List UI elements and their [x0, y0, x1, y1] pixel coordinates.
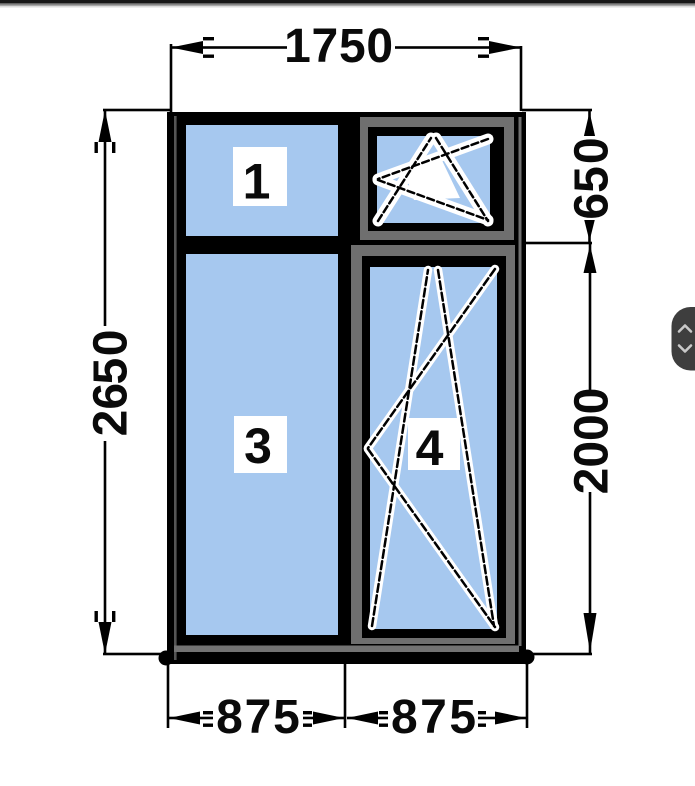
svg-text:5: 5 — [339, 20, 366, 73]
svg-text:2: 2 — [85, 410, 138, 437]
svg-text:0: 0 — [566, 414, 619, 441]
svg-text:3: 3 — [244, 418, 272, 474]
svg-text:6: 6 — [566, 193, 619, 220]
svg-text:0: 0 — [566, 388, 619, 415]
svg-text:5: 5 — [449, 691, 476, 744]
svg-text:0: 0 — [85, 330, 138, 357]
svg-text:6: 6 — [85, 383, 138, 410]
svg-text:2: 2 — [566, 468, 619, 495]
svg-text:5: 5 — [566, 166, 619, 193]
svg-text:5: 5 — [273, 691, 300, 744]
svg-text:1: 1 — [284, 20, 311, 73]
svg-text:5: 5 — [85, 358, 138, 385]
svg-text:7: 7 — [420, 691, 447, 744]
svg-text:8: 8 — [216, 691, 243, 744]
svg-text:0: 0 — [366, 20, 393, 73]
svg-text:7: 7 — [312, 20, 339, 73]
svg-text:7: 7 — [245, 691, 272, 744]
svg-text:0: 0 — [566, 441, 619, 468]
svg-text:0: 0 — [566, 137, 619, 164]
svg-text:8: 8 — [391, 691, 418, 744]
svg-text:1: 1 — [243, 154, 271, 210]
svg-text:4: 4 — [416, 420, 444, 476]
